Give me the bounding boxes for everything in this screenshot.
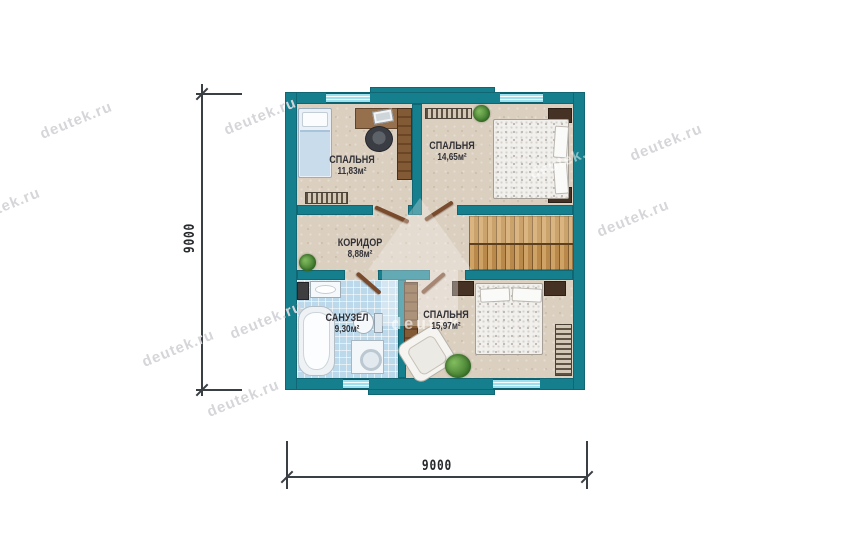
dimension-line-horizontal [287, 476, 587, 478]
floor-plan: deutek СПАЛЬНЯ 11,83м² СПАЛЬНЯ 14,65м² К… [285, 92, 585, 390]
watermark-text: deutek.ru [595, 196, 672, 240]
dimension-extension-right [586, 441, 588, 489]
pillow [480, 287, 511, 303]
washing-machine [351, 340, 384, 374]
dimension-label-width: 9000 [413, 458, 461, 474]
plant-icon [445, 354, 471, 378]
pillow [512, 287, 543, 303]
wall-top-ledge [370, 87, 495, 93]
room-area: 15,97м² [412, 321, 481, 332]
room-area: 9,30м² [313, 324, 382, 335]
room-name: САНУЗЕЛ [313, 312, 382, 324]
wall-right [573, 92, 585, 390]
radiator [555, 324, 572, 376]
wall-corridor-top-left [297, 205, 373, 215]
watermark-text: deutek.ru [205, 376, 282, 420]
staircase [469, 216, 573, 270]
watermark-text: deutek.ru [38, 98, 115, 142]
bathroom-cabinet [297, 282, 309, 300]
window-icon [493, 378, 540, 390]
room-name: СПАЛЬНЯ [418, 140, 487, 152]
radiator [425, 108, 472, 119]
room-label-bedroom1: СПАЛЬНЯ 11,83м² [318, 154, 387, 178]
plant-icon [473, 105, 490, 122]
watermark-text: deutek.ru [628, 120, 705, 164]
wall-corridor-top-right [457, 205, 573, 215]
dimension-extension-left [286, 441, 288, 489]
plant-icon [299, 254, 316, 271]
wardrobe [397, 108, 412, 180]
double-bed [475, 283, 543, 355]
radiator [305, 192, 348, 204]
room-name: КОРИДОР [326, 237, 395, 249]
wall-corridor-bottom-left [297, 270, 345, 280]
pillow [302, 112, 328, 127]
sink [310, 281, 341, 298]
wall-bottom-ledge [368, 389, 495, 395]
office-chair [365, 126, 393, 152]
room-label-bedroom3: СПАЛЬНЯ 15,97м² [412, 309, 481, 333]
window-icon [500, 92, 543, 104]
watermark-text: deutek.ru [140, 326, 217, 370]
window-icon [343, 378, 369, 390]
room-label-corridor: КОРИДОР 8,88м² [326, 237, 395, 261]
nightstand [544, 281, 566, 296]
room-label-bathroom: САНУЗЕЛ 9,30м² [313, 312, 382, 336]
room-area: 14,65м² [418, 152, 487, 163]
floor-plan-canvas: deutek СПАЛЬНЯ 11,83м² СПАЛЬНЯ 14,65м² К… [0, 0, 860, 540]
room-area: 8,88м² [326, 249, 395, 260]
room-label-bedroom2: СПАЛЬНЯ 14,65м² [418, 140, 487, 164]
window-icon [326, 92, 370, 104]
watermark-text: deutek.ru [0, 184, 43, 228]
dimension-line-vertical [201, 84, 203, 396]
wall-left [285, 92, 297, 390]
wall-corridor-bottom-right [465, 270, 573, 280]
room-name: СПАЛЬНЯ [412, 309, 481, 321]
room-name: СПАЛЬНЯ [318, 154, 387, 166]
dimension-label-height: 9000 [182, 220, 198, 255]
room-area: 11,83м² [318, 166, 387, 177]
